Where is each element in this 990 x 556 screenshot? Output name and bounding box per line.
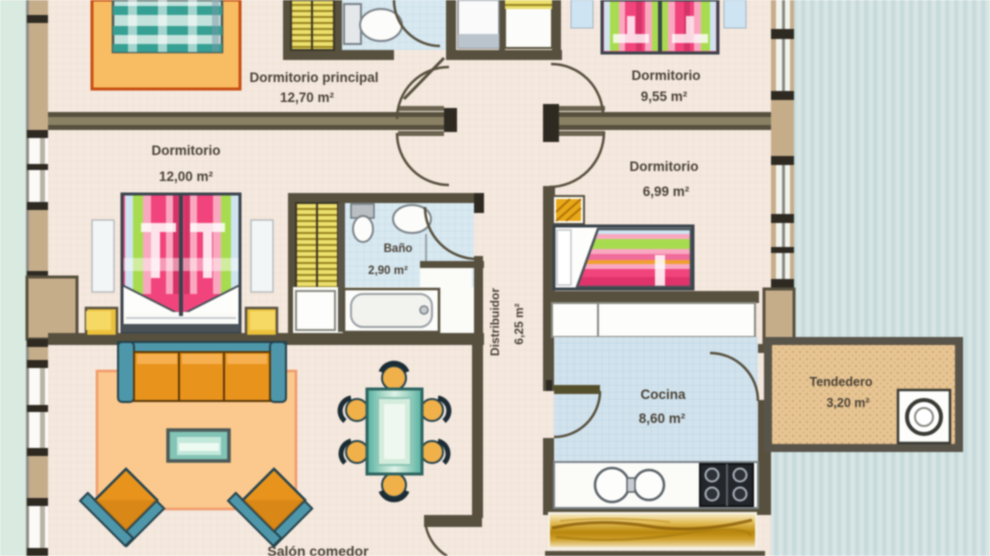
- svg-text:Cocina: Cocina: [640, 387, 686, 402]
- svg-text:8,60 m²: 8,60 m²: [639, 411, 686, 426]
- svg-text:Salón comedor: Salón comedor: [267, 543, 369, 556]
- svg-text:6,25 m²: 6,25 m²: [512, 303, 526, 344]
- svg-text:12,70 m²: 12,70 m²: [280, 90, 335, 105]
- svg-text:6,99 m²: 6,99 m²: [643, 184, 690, 199]
- svg-text:Distribuidor: Distribuidor: [488, 288, 502, 356]
- svg-text:2,90 m²: 2,90 m²: [368, 265, 408, 277]
- svg-text:12,00 m²: 12,00 m²: [159, 169, 214, 184]
- svg-text:Dormitorio: Dormitorio: [630, 159, 699, 174]
- svg-text:9,55 m²: 9,55 m²: [641, 89, 688, 104]
- svg-text:Dormitorio: Dormitorio: [632, 68, 701, 83]
- svg-text:Dormitorio principal: Dormitorio principal: [249, 70, 378, 85]
- svg-text:Baño: Baño: [384, 243, 413, 255]
- svg-text:Tendedero: Tendedero: [810, 375, 873, 389]
- svg-text:3,20 m²: 3,20 m²: [826, 396, 869, 410]
- svg-text:Dormitorio: Dormitorio: [152, 143, 221, 158]
